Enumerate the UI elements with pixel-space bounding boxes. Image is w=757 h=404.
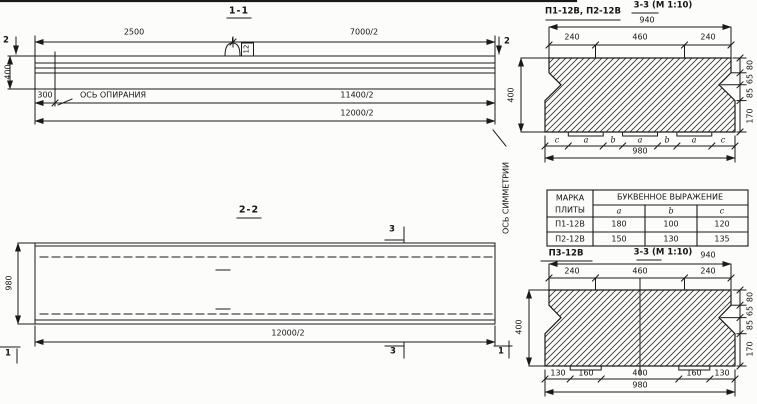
table-row2-mark: П2-12В <box>555 235 585 244</box>
dim-400-center: 400 <box>632 369 647 378</box>
drawing-canvas: 1-1 2500 7000/2 11400/2 12000/2 400 300 … <box>0 0 757 404</box>
section-3-3-top-title: 3-3 (М 1:10) <box>634 2 693 11</box>
drawing-linework <box>0 0 757 404</box>
letter-a2: a <box>638 136 643 145</box>
cut-mark-2-left: 2 <box>3 37 9 46</box>
section-2-2-linework <box>0 130 512 363</box>
section-1-1-title: 1-1 <box>229 7 249 16</box>
dim-980-left: 980 <box>5 275 14 290</box>
dim-300: 300 <box>37 91 52 100</box>
dim-980-b: 980 <box>632 381 647 390</box>
table-header-marka: МАРКА <box>556 194 584 203</box>
section-1-1-linework <box>8 18 499 124</box>
letter-b2: b <box>664 136 669 145</box>
table-row2-a: 150 <box>611 235 626 244</box>
chain-65-b: 65 <box>746 306 755 316</box>
table-header-expression: БУКВЕННОЕ ВЫРАЖЕНИЕ <box>617 193 723 202</box>
cross-section-outline-p1p2 <box>545 58 735 132</box>
table-row1-a: 180 <box>611 220 626 229</box>
letter-c1: c <box>555 136 559 145</box>
table-col-a: a <box>617 207 622 216</box>
table-row1-b: 100 <box>663 220 678 229</box>
chain-80-a: 80 <box>746 60 755 70</box>
letter-a3: a <box>692 136 697 145</box>
letter-c2: c <box>721 136 725 145</box>
chain-170-a: 170 <box>746 108 755 123</box>
chain-85-a: 85 <box>746 88 755 98</box>
dim-240-a2: 240 <box>700 33 715 42</box>
plate-label-p1-p2: П1-12В, П2-12В <box>545 8 621 17</box>
dim-160-2: 160 <box>686 369 701 378</box>
dim-2500: 2500 <box>124 28 144 37</box>
dim-130-1: 130 <box>550 369 565 378</box>
table-row1-c: 120 <box>714 220 729 229</box>
dim-400-b: 400 <box>515 319 524 334</box>
dim-12000-2-plan: 12000/2 <box>271 329 304 338</box>
cut-mark-2-right: 2 <box>504 38 510 47</box>
chain-80-b: 80 <box>746 292 755 302</box>
dim-940-b: 940 <box>700 251 715 260</box>
dim-130-2: 130 <box>714 369 729 378</box>
symmetry-axis-note: ОСЬ СИММЕТРИИ <box>502 162 511 234</box>
cut-mark-3-bottom: 3 <box>390 348 396 357</box>
chain-65-a: 65 <box>746 74 755 84</box>
table-header-plity: ПЛИТЫ <box>555 206 585 215</box>
dim-11400-2: 11400/2 <box>340 91 373 100</box>
dim-240-a: 240 <box>564 33 579 42</box>
plate-label-p3: П3-12В <box>549 250 584 259</box>
table-col-b: b <box>668 207 673 216</box>
letter-a1: a <box>584 136 589 145</box>
dim-240-b: 240 <box>564 267 579 276</box>
dim-240-b2: 240 <box>700 267 715 276</box>
hook-mark: 12 <box>243 45 252 54</box>
section-3-3-bottom-title: 3-3 (М 1:10) <box>634 249 693 258</box>
letter-b1: b <box>610 136 615 145</box>
chain-170-b: 170 <box>746 341 755 356</box>
dim-400-left: 400 <box>4 64 13 79</box>
dim-160-1: 160 <box>578 369 593 378</box>
dim-7000-2: 7000/2 <box>350 28 378 37</box>
dim-400-a: 400 <box>507 87 516 102</box>
section-2-2-title: 2-2 <box>239 206 259 215</box>
cross-section-outline-p3 <box>545 290 735 366</box>
dim-12000-2: 12000/2 <box>340 109 373 118</box>
table-row2-b: 130 <box>663 235 678 244</box>
chain-85-b: 85 <box>746 320 755 330</box>
table-row2-c: 135 <box>714 235 729 244</box>
dim-980-a: 980 <box>632 147 647 156</box>
dim-460-b: 460 <box>632 267 647 276</box>
cut-mark-1-left: 1 <box>5 350 11 359</box>
dim-460-a: 460 <box>632 33 647 42</box>
table-col-c: c <box>720 207 724 216</box>
support-axis-note: ОСЬ ОПИРАНИЯ <box>80 91 146 100</box>
cut-mark-3-top: 3 <box>389 226 395 235</box>
dim-940-top: 940 <box>639 16 654 25</box>
table-row1-mark: П1-12В <box>555 220 585 229</box>
cut-mark-1-right: 1 <box>498 348 504 357</box>
